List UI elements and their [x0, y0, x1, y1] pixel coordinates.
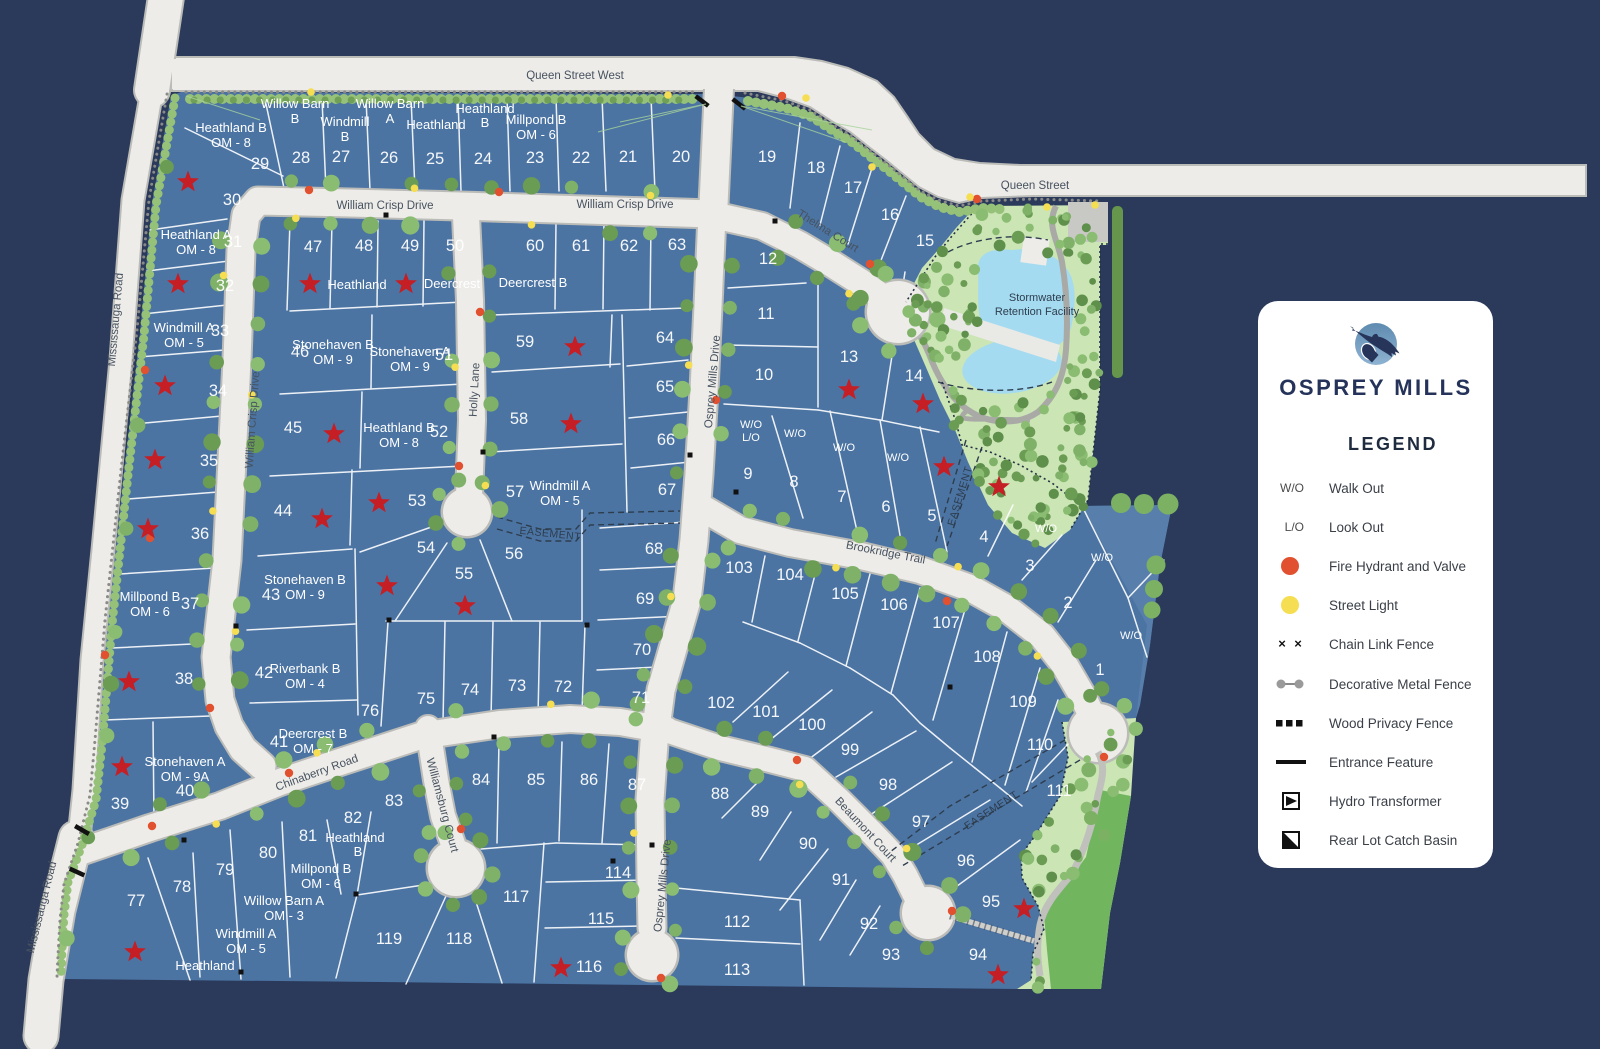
svg-text:OM - 6: OM - 6: [130, 604, 170, 619]
svg-text:18: 18: [807, 159, 825, 177]
svg-text:Walk Out: Walk Out: [1329, 481, 1384, 496]
svg-text:Windmill A: Windmill A: [154, 320, 215, 335]
svg-text:B: B: [291, 111, 300, 126]
svg-text:114: 114: [605, 864, 631, 882]
svg-text:A: A: [386, 111, 395, 126]
svg-text:44: 44: [274, 502, 292, 520]
svg-text:5: 5: [927, 507, 936, 525]
svg-text:Fire Hydrant and Valve: Fire Hydrant and Valve: [1329, 559, 1466, 574]
svg-text:Chain Link Fence: Chain Link Fence: [1329, 637, 1434, 652]
svg-text:W/O: W/O: [784, 428, 806, 440]
svg-text:78: 78: [173, 878, 191, 896]
svg-text:32: 32: [216, 277, 234, 295]
svg-text:B: B: [481, 115, 490, 130]
svg-text:62: 62: [620, 237, 638, 255]
svg-text:77: 77: [127, 892, 145, 910]
svg-text:28: 28: [292, 149, 310, 167]
svg-text:17: 17: [844, 179, 862, 197]
svg-text:99: 99: [841, 741, 859, 759]
svg-text:23: 23: [526, 149, 544, 167]
svg-text:OM - 3: OM - 3: [264, 908, 304, 923]
svg-text:Heathland: Heathland: [325, 830, 384, 845]
svg-text:OM - 5: OM - 5: [540, 493, 580, 508]
svg-text:119: 119: [376, 930, 402, 948]
svg-text:Stonehaven B: Stonehaven B: [264, 572, 346, 587]
svg-text:64: 64: [656, 329, 674, 347]
svg-text:OM - 6: OM - 6: [301, 876, 341, 891]
svg-text:7: 7: [837, 488, 846, 506]
svg-text:Millpond B: Millpond B: [506, 112, 567, 127]
svg-text:39: 39: [111, 795, 129, 813]
svg-text:26: 26: [380, 149, 398, 167]
svg-text:22: 22: [572, 149, 590, 167]
svg-text:61: 61: [572, 237, 590, 255]
svg-text:118: 118: [446, 930, 472, 948]
svg-text:86: 86: [580, 771, 598, 789]
svg-text:82: 82: [344, 809, 362, 827]
svg-text:93: 93: [882, 946, 900, 964]
svg-text:103: 103: [725, 559, 753, 577]
svg-text:101: 101: [752, 703, 780, 721]
svg-text:55: 55: [455, 565, 473, 583]
svg-text:4: 4: [979, 528, 988, 546]
svg-text:LEGEND: LEGEND: [1348, 434, 1438, 454]
svg-text:Heathland: Heathland: [327, 277, 386, 292]
svg-text:W/O: W/O: [1120, 630, 1142, 642]
svg-text:74: 74: [461, 681, 479, 699]
svg-text:58: 58: [510, 410, 528, 428]
svg-text:Hydro Transformer: Hydro Transformer: [1329, 794, 1442, 809]
svg-text:69: 69: [636, 590, 654, 608]
svg-text:10: 10: [755, 366, 773, 384]
svg-text:OM - 9: OM - 9: [285, 587, 325, 602]
svg-text:OM - 8: OM - 8: [211, 135, 251, 150]
svg-text:72: 72: [554, 678, 572, 696]
svg-text:Heathland A: Heathland A: [161, 227, 232, 242]
svg-text:Stonehaven A: Stonehaven A: [370, 344, 451, 359]
svg-text:112: 112: [724, 913, 750, 931]
svg-text:48: 48: [355, 237, 373, 255]
svg-text:108: 108: [973, 648, 1001, 666]
svg-text:24: 24: [474, 150, 492, 168]
svg-text:37: 37: [181, 595, 199, 613]
svg-text:100: 100: [798, 716, 826, 734]
svg-text:97: 97: [912, 813, 930, 831]
svg-text:W/O: W/O: [1035, 523, 1057, 535]
svg-text:Wood Privacy Fence: Wood Privacy Fence: [1329, 716, 1453, 731]
svg-text:66: 66: [657, 431, 675, 449]
svg-text:79: 79: [216, 861, 234, 879]
svg-text:Queen Street: Queen Street: [1001, 180, 1070, 192]
svg-text:98: 98: [879, 776, 897, 794]
svg-text:34: 34: [209, 382, 227, 400]
svg-text:92: 92: [860, 915, 878, 933]
svg-text:2: 2: [1063, 594, 1072, 612]
svg-text:113: 113: [724, 961, 750, 979]
svg-text:81: 81: [299, 827, 317, 845]
svg-text:William Crisp Drive: William Crisp Drive: [576, 199, 673, 211]
svg-text:16: 16: [881, 206, 899, 224]
svg-text:53: 53: [408, 492, 426, 510]
svg-text:76: 76: [361, 702, 379, 720]
svg-text:B: B: [341, 129, 350, 144]
svg-text:27: 27: [332, 148, 350, 166]
svg-text:William Crisp Drive: William Crisp Drive: [336, 200, 433, 212]
svg-text:Decorative Metal Fence: Decorative Metal Fence: [1329, 677, 1472, 692]
svg-text:89: 89: [751, 803, 769, 821]
svg-text:115: 115: [588, 910, 614, 928]
svg-text:Street Light: Street Light: [1329, 598, 1398, 613]
svg-text:OM - 9A: OM - 9A: [161, 769, 210, 784]
svg-text:21: 21: [619, 148, 637, 166]
svg-text:3: 3: [1025, 557, 1034, 575]
svg-text:75: 75: [417, 690, 435, 708]
svg-text:84: 84: [472, 771, 490, 789]
svg-text:OM - 5: OM - 5: [226, 941, 266, 956]
svg-text:13: 13: [840, 348, 858, 366]
svg-text:102: 102: [707, 694, 735, 712]
svg-text:65: 65: [656, 378, 674, 396]
svg-text:×: ×: [1278, 636, 1286, 651]
svg-text:Heathland: Heathland: [406, 117, 465, 132]
svg-text:Heathland B: Heathland B: [195, 120, 267, 135]
svg-text:Deercrest: Deercrest: [424, 276, 481, 291]
svg-text:Entrance Feature: Entrance Feature: [1329, 755, 1433, 770]
svg-text:90: 90: [799, 835, 817, 853]
svg-text:109: 109: [1009, 693, 1037, 711]
svg-text:Millpond B: Millpond B: [120, 589, 181, 604]
svg-text:Rear Lot Catch Basin: Rear Lot Catch Basin: [1329, 833, 1457, 848]
svg-text:OM - 5: OM - 5: [164, 335, 204, 350]
svg-text:95: 95: [982, 893, 1000, 911]
svg-text:35: 35: [200, 452, 218, 470]
svg-text:71: 71: [632, 689, 650, 707]
svg-text:110: 110: [1027, 736, 1053, 754]
svg-text:70: 70: [633, 641, 651, 659]
svg-text:83: 83: [385, 792, 403, 810]
svg-text:6: 6: [881, 498, 890, 516]
svg-text:117: 117: [503, 888, 529, 906]
svg-text:L/O: L/O: [1285, 520, 1304, 534]
svg-text:Willow Barn A: Willow Barn A: [244, 893, 325, 908]
svg-text:30: 30: [223, 191, 241, 209]
svg-text:104: 104: [776, 566, 804, 584]
svg-text:96: 96: [957, 852, 975, 870]
svg-text:12: 12: [759, 250, 777, 268]
svg-text:Windmill A: Windmill A: [216, 926, 277, 941]
svg-text:19: 19: [758, 148, 776, 166]
svg-text:×: ×: [1294, 636, 1302, 651]
svg-text:OM - 6: OM - 6: [516, 127, 556, 142]
svg-text:W/O: W/O: [1280, 481, 1304, 495]
svg-text:11: 11: [757, 305, 774, 323]
svg-text:Stormwater: Stormwater: [1009, 292, 1066, 304]
svg-text:Windmill A: Windmill A: [530, 478, 591, 493]
svg-text:Retention Facility: Retention Facility: [995, 306, 1080, 318]
svg-text:W/O: W/O: [833, 442, 855, 454]
svg-text:25: 25: [426, 150, 444, 168]
svg-text:Willow Barn: Willow Barn: [261, 96, 330, 111]
svg-text:20: 20: [672, 148, 690, 166]
svg-text:106: 106: [880, 596, 908, 614]
svg-text:OM - 4: OM - 4: [285, 676, 325, 691]
svg-text:OM - 8: OM - 8: [176, 242, 216, 257]
svg-text:1: 1: [1095, 661, 1104, 679]
svg-text:80: 80: [259, 844, 277, 862]
svg-text:L/O: L/O: [742, 432, 760, 444]
svg-text:9: 9: [743, 465, 752, 483]
svg-text:60: 60: [526, 237, 544, 255]
svg-text:107: 107: [932, 614, 960, 632]
svg-text:Deercrest B: Deercrest B: [279, 726, 348, 741]
svg-text:56: 56: [505, 545, 523, 563]
svg-text:8: 8: [789, 473, 798, 491]
svg-text:47: 47: [304, 238, 322, 256]
svg-text:36: 36: [191, 525, 209, 543]
svg-text:Heathland: Heathland: [175, 958, 234, 973]
svg-text:Heathland B: Heathland B: [363, 420, 435, 435]
svg-text:87: 87: [628, 776, 646, 794]
svg-text:54: 54: [417, 539, 435, 557]
svg-text:Deercrest B: Deercrest B: [499, 275, 568, 290]
svg-text:49: 49: [401, 237, 419, 255]
svg-text:OM - 9: OM - 9: [313, 352, 353, 367]
svg-text:94: 94: [969, 946, 987, 964]
svg-text:Stonehaven B: Stonehaven B: [292, 337, 374, 352]
svg-text:40: 40: [176, 782, 194, 800]
svg-text:Windmill: Windmill: [320, 114, 369, 129]
svg-text:W/O: W/O: [887, 452, 909, 464]
svg-text:85: 85: [527, 771, 545, 789]
svg-text:116: 116: [576, 958, 602, 976]
svg-text:Queen Street West: Queen Street West: [526, 70, 624, 82]
svg-text:63: 63: [668, 236, 686, 254]
svg-text:Willow Barn: Willow Barn: [356, 96, 425, 111]
svg-text:29: 29: [251, 155, 269, 173]
svg-text:15: 15: [916, 232, 934, 250]
svg-text:88: 88: [711, 785, 729, 803]
svg-text:67: 67: [658, 481, 676, 499]
svg-text:68: 68: [645, 540, 663, 558]
svg-text:Stonehaven A: Stonehaven A: [145, 754, 226, 769]
svg-text:W/O: W/O: [740, 419, 762, 431]
svg-text:111: 111: [1046, 782, 1071, 800]
svg-text:OM - 8: OM - 8: [379, 435, 419, 450]
svg-text:14: 14: [905, 367, 923, 385]
svg-text:Riverbank B: Riverbank B: [270, 661, 341, 676]
svg-text:OSPREY MILLS: OSPREY MILLS: [1279, 375, 1472, 400]
svg-text:Millpond B: Millpond B: [291, 861, 352, 876]
svg-text:59: 59: [516, 333, 534, 351]
svg-text:45: 45: [284, 419, 302, 437]
svg-text:50: 50: [446, 237, 464, 255]
svg-text:105: 105: [831, 585, 859, 603]
svg-text:B: B: [354, 844, 363, 859]
svg-text:Look Out: Look Out: [1329, 520, 1384, 535]
svg-text:91: 91: [832, 871, 850, 889]
svg-text:OM - 9: OM - 9: [390, 359, 430, 374]
svg-text:OM - 7: OM - 7: [293, 741, 333, 756]
svg-text:38: 38: [175, 670, 193, 688]
svg-text:73: 73: [508, 677, 526, 695]
svg-text:W/O: W/O: [1091, 552, 1113, 564]
svg-text:43: 43: [262, 586, 280, 604]
svg-text:57: 57: [506, 483, 524, 501]
